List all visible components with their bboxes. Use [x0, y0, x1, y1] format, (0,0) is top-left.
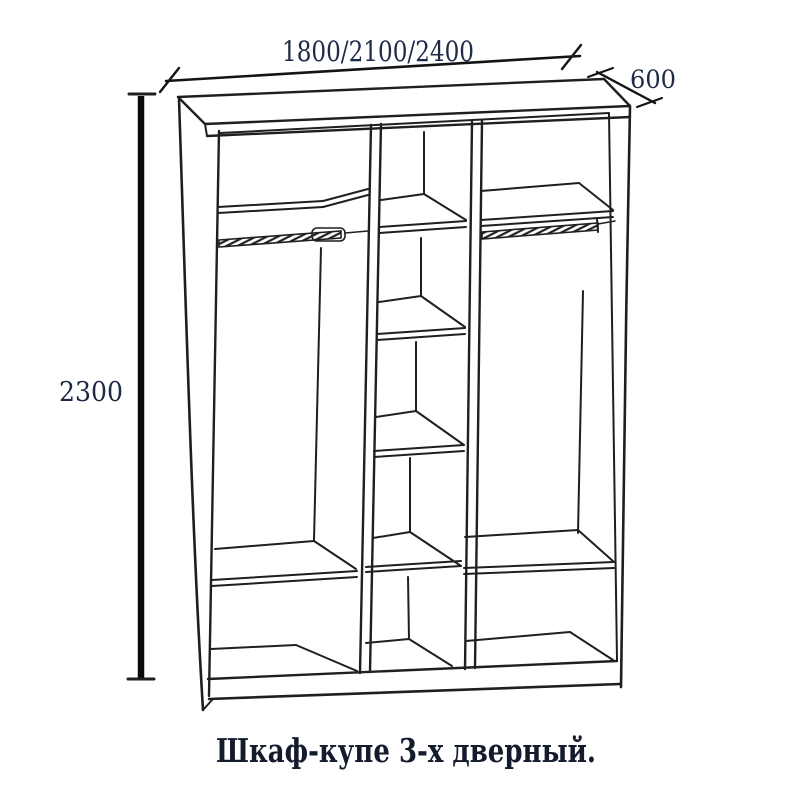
right-lower-shelf: [466, 632, 613, 660]
shelf-thickness-edge: [464, 568, 614, 574]
middle-shelf-3: [374, 342, 464, 457]
shelf-back-corner-line: [408, 577, 409, 639]
shelf-corner-diagonal-thickness: [323, 195, 368, 207]
left-lower-shelf: [211, 645, 357, 671]
shelf-corner-diagonal: [421, 296, 465, 327]
shelf-back-edge: [211, 645, 296, 649]
shelf-back-edge: [379, 296, 421, 302]
shelf-corner-diagonal: [409, 639, 452, 666]
left-bottom-shelf: [212, 541, 357, 586]
hanging-rail-support: [345, 231, 368, 233]
dimension-depth: 600: [588, 65, 676, 107]
bottom-left-corner-join: [203, 700, 212, 710]
right-top-shelf: [481, 183, 613, 226]
left-back-corner-line: [314, 248, 321, 540]
shelf-corner-diagonal: [323, 189, 368, 201]
left-wall-inner-edge: [209, 131, 219, 696]
shelf-front-edge: [374, 445, 464, 451]
shelf-front-edge: [464, 562, 614, 568]
right-wall-inner-edge: [609, 114, 617, 660]
right-wall-outer-edge: [621, 107, 630, 687]
depth-dimension-tick-top: [588, 68, 613, 77]
middle-shelf-2: [377, 238, 465, 340]
width-dimension-label: 1800/2100/2400: [282, 35, 474, 68]
left-wall-outer-edge: [179, 99, 203, 710]
shelf-back-edge: [373, 532, 410, 538]
shelf-back-edge: [376, 411, 416, 417]
depth-dimension-label: 600: [630, 65, 676, 94]
top-slab-left-cap: [205, 124, 207, 136]
shelf-corner-diagonal: [314, 541, 356, 569]
bottom-front-edge: [209, 684, 620, 699]
middle-section: [366, 132, 466, 666]
hanging-rail-bar: [219, 231, 341, 247]
shelf-front-edge: [377, 328, 465, 334]
divider-right-front-edge: [465, 122, 472, 669]
shelf-front-edge: [380, 221, 466, 227]
left-hanging-rail: [219, 228, 368, 247]
shelf-thickness-edge: [218, 207, 323, 213]
dimension-height: 2300: [59, 94, 155, 679]
divider-right-back-edge: [475, 121, 482, 668]
shelf-corner-diagonal: [416, 411, 464, 445]
plinth-top-edge: [208, 661, 617, 679]
divider-left-front-edge: [360, 125, 371, 673]
shelf-back-edge: [481, 183, 579, 191]
shelf-thickness-edge: [380, 227, 466, 233]
left-section: [211, 189, 368, 671]
right-section: [464, 183, 615, 660]
height-dimension-label: 2300: [59, 377, 123, 408]
caption: Шкаф-купе 3-х дверный.: [216, 731, 596, 770]
shelf-back-edge: [366, 639, 409, 643]
middle-shelf-5: [366, 577, 452, 666]
divider-left-back-edge: [370, 124, 381, 672]
middle-shelf-4: [366, 458, 461, 572]
right-back-corner-line: [578, 291, 583, 533]
shelf-back-edge: [465, 530, 578, 537]
shelf-corner-diagonal: [570, 632, 613, 660]
top-left-edge: [178, 97, 205, 124]
wardrobe-diagram: 1800/2100/2400 600 2300: [0, 0, 800, 800]
wardrobe-carcass: [178, 79, 630, 710]
hanging-rail-support: [598, 221, 615, 224]
hanging-rail-end-tick: [597, 219, 598, 232]
shelf-thickness-edge: [377, 334, 465, 340]
right-bottom-shelf: [464, 530, 614, 574]
left-top-shelf: [218, 189, 368, 213]
shelf-thickness-edge: [374, 451, 464, 457]
shelf-corner-diagonal: [578, 530, 614, 562]
shelf-back-edge: [215, 541, 314, 549]
shelf-corner-diagonal: [424, 194, 466, 220]
drawing-page: 1800/2100/2400 600 2300: [0, 0, 800, 800]
shelf-corner-diagonal: [579, 183, 613, 210]
shelf-corner-diagonal: [296, 645, 357, 671]
middle-shelf-1: [380, 132, 466, 233]
shelf-back-edge: [381, 194, 424, 200]
top-slab-bottom-edge: [207, 117, 630, 136]
shelf-front-edge: [218, 201, 323, 207]
shelf-back-edge: [466, 632, 570, 641]
top-back-edge: [178, 79, 604, 97]
